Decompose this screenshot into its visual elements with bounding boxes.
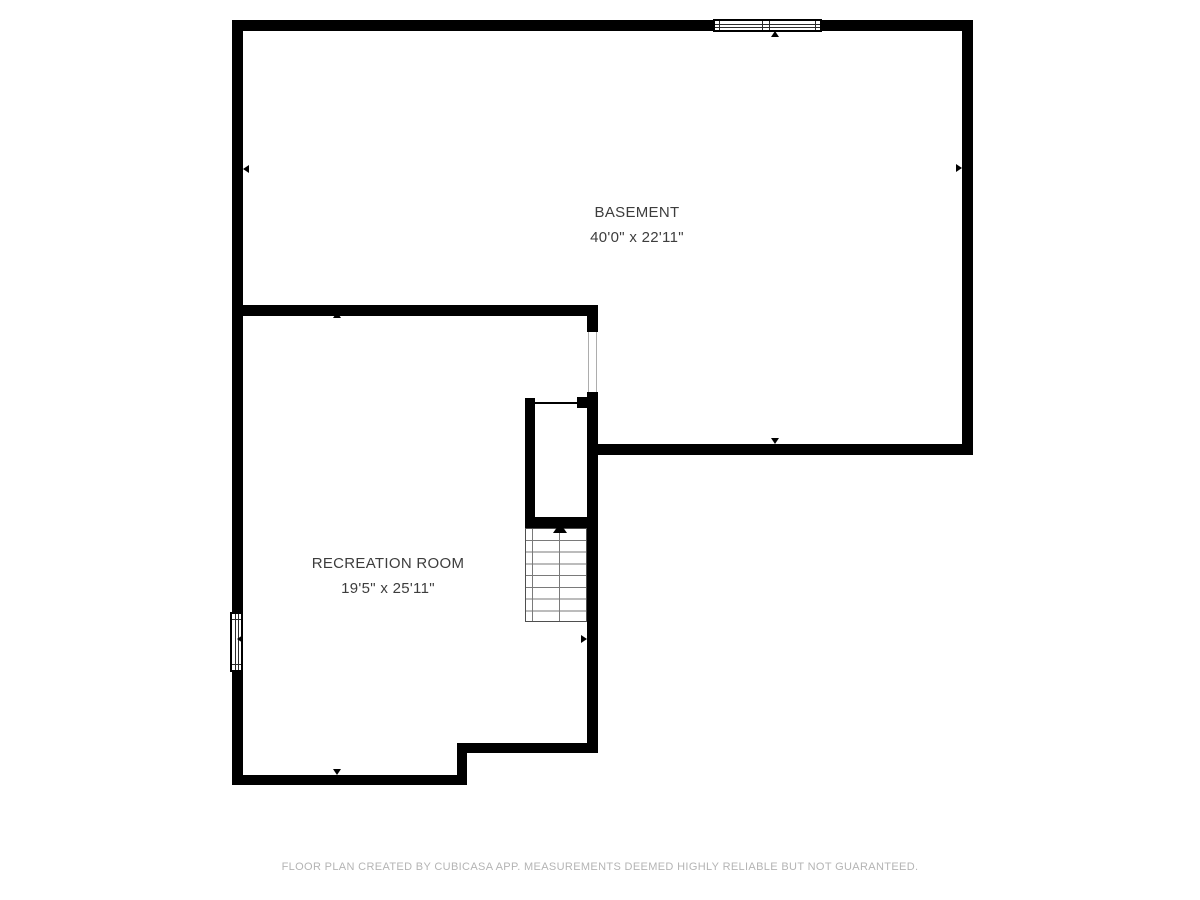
room-dimensions: 19'5" x 25'11" bbox=[312, 576, 465, 601]
wall-basement-bottom bbox=[592, 444, 973, 455]
wall-left-upper-segment bbox=[232, 20, 243, 612]
window-top-icon bbox=[713, 19, 822, 32]
wall-top-right-segment bbox=[822, 20, 973, 31]
stair-stringer-line bbox=[532, 529, 533, 621]
stair-center-line bbox=[559, 529, 560, 621]
wall-recreation-bottom bbox=[232, 775, 467, 785]
opening-marker-up-icon bbox=[771, 31, 779, 37]
wall-left-lower-segment bbox=[232, 671, 243, 785]
doorway-jamb-left bbox=[588, 332, 589, 392]
room-name: BASEMENT bbox=[590, 200, 684, 225]
staircase bbox=[525, 528, 587, 622]
recreation-room-label: RECREATION ROOM 19'5" x 25'11" bbox=[312, 551, 465, 601]
wall-stair-closet-corner bbox=[577, 397, 587, 408]
window-glass-line bbox=[715, 24, 820, 25]
floor-plan: BASEMENT 40'0" x 22'11" RECREATION ROOM … bbox=[0, 0, 1200, 900]
opening-marker-left-icon bbox=[243, 165, 249, 173]
window-mullion bbox=[719, 21, 720, 30]
window-mullion bbox=[232, 619, 241, 620]
wall-lower-mid-horizontal bbox=[457, 743, 598, 753]
window-mullion bbox=[762, 21, 763, 30]
wall-right-basement bbox=[962, 20, 973, 455]
wall-recreation-right-upper bbox=[587, 305, 598, 332]
wall-recreation-right-lower bbox=[587, 392, 598, 753]
window-mullion bbox=[815, 21, 816, 30]
window-mullion bbox=[232, 664, 241, 665]
room-dimensions: 40'0" x 22'11" bbox=[590, 225, 684, 250]
window-glass-line bbox=[235, 614, 236, 670]
wall-top-left-segment bbox=[232, 20, 713, 31]
doorway-jamb-right bbox=[596, 332, 597, 392]
window-mullion bbox=[769, 21, 770, 30]
opening-marker-right-icon bbox=[581, 635, 587, 643]
wall-stair-closet-left bbox=[525, 398, 535, 518]
opening-marker-right-icon bbox=[956, 164, 962, 172]
wall-recreation-top bbox=[232, 305, 598, 316]
opening-marker-up-icon bbox=[333, 312, 341, 318]
opening-marker-down-icon bbox=[771, 438, 779, 444]
opening-marker-down-icon bbox=[333, 769, 341, 775]
window-glass-line bbox=[715, 27, 820, 28]
footer-disclaimer: FLOOR PLAN CREATED BY CUBICASA APP. MEAS… bbox=[0, 861, 1200, 873]
opening-marker-left-icon bbox=[237, 635, 243, 643]
stair-closet-top-line bbox=[535, 402, 577, 404]
stairs-up-arrow-icon bbox=[553, 523, 567, 533]
room-name: RECREATION ROOM bbox=[312, 551, 465, 576]
basement-room-label: BASEMENT 40'0" x 22'11" bbox=[590, 200, 684, 250]
